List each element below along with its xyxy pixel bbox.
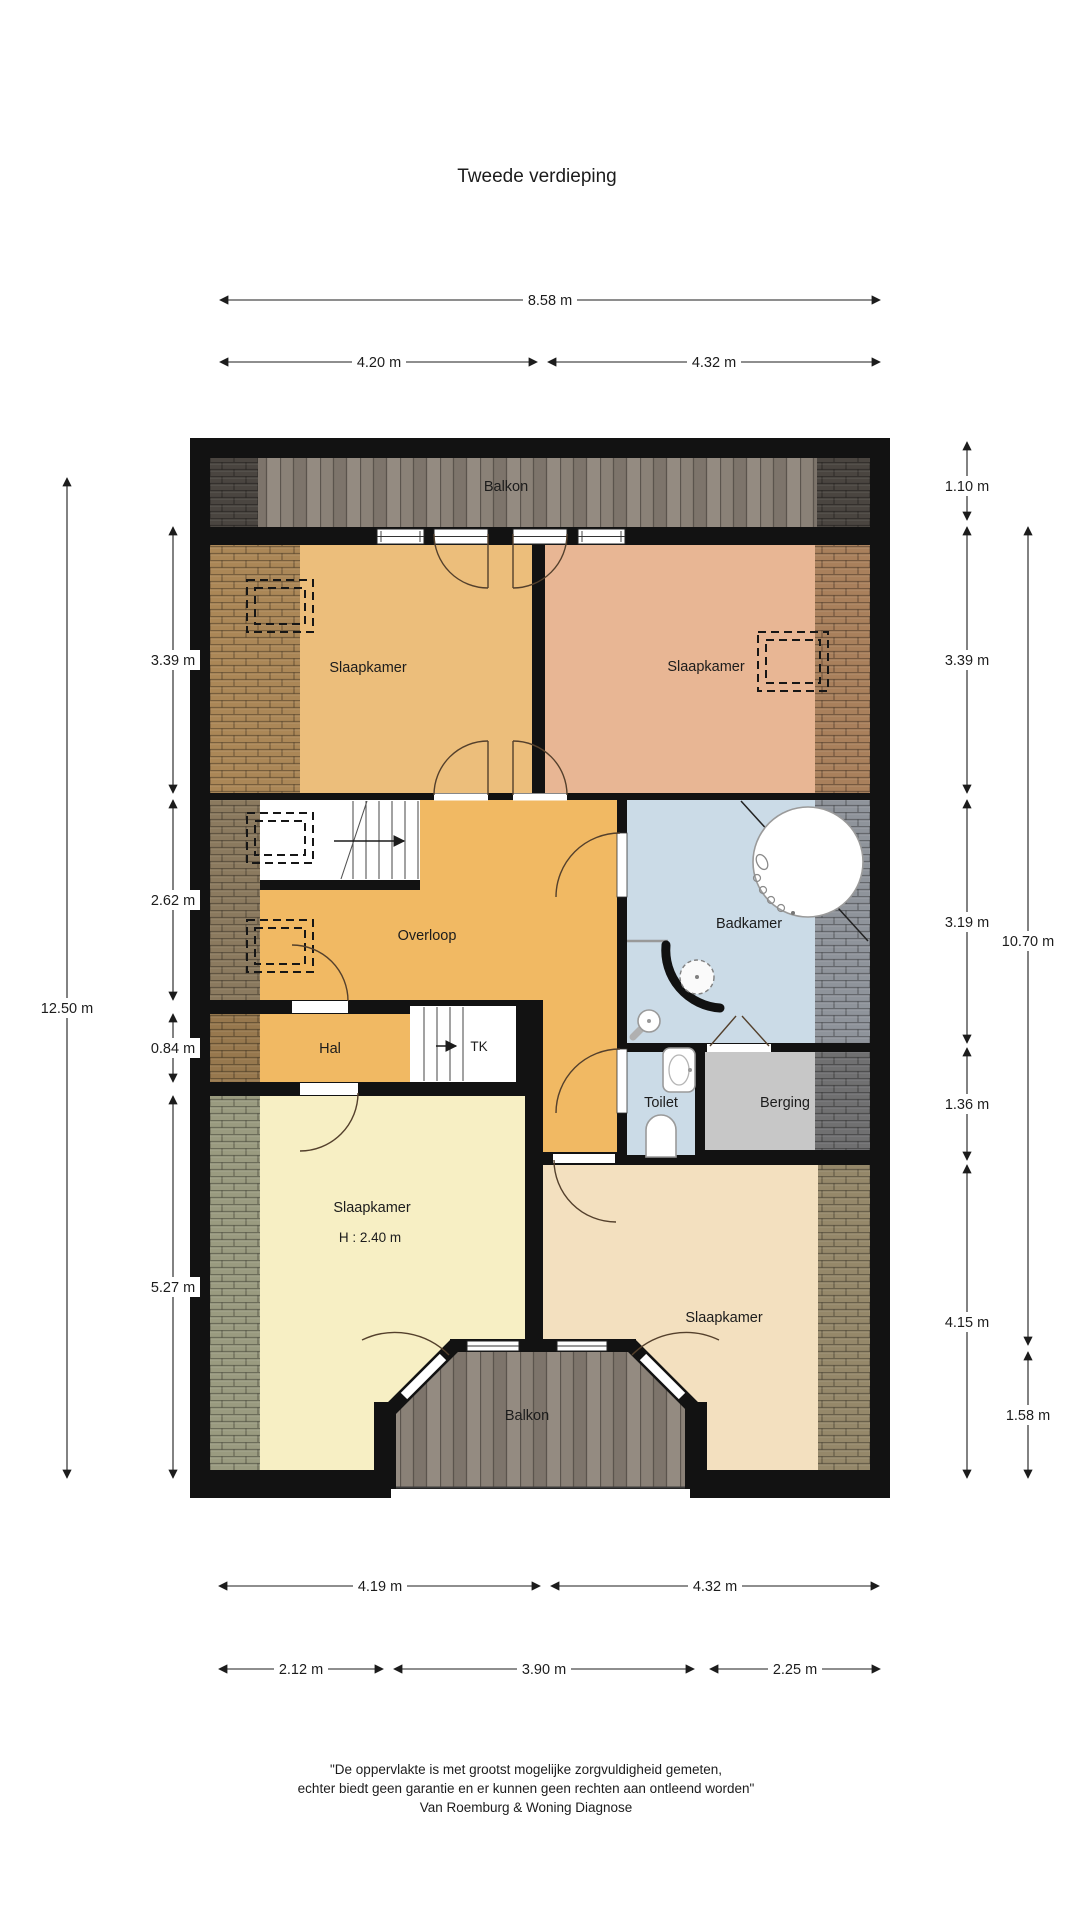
- room-label-slaapkamer-br: Slaapkamer: [685, 1310, 763, 1326]
- dim-right-total: 10.70 m: [1002, 934, 1054, 950]
- overloop-corridor: [543, 1000, 617, 1152]
- room-label-badkamer: Badkamer: [716, 916, 782, 932]
- dim-bottom-row1-left: 4.19 m: [358, 1579, 402, 1595]
- room-label-tk: TK: [470, 1039, 487, 1054]
- toilet-bowl: [646, 1115, 676, 1157]
- dim-left-seg3: 0.84 m: [151, 1041, 195, 1057]
- dim-bottom-row2-mid: 3.90 m: [522, 1662, 566, 1678]
- room-label-toilet: Toilet: [644, 1095, 678, 1111]
- dim-right-seg5: 4.15 m: [945, 1315, 989, 1331]
- door-hal: [292, 1001, 348, 1013]
- door-threshold: [513, 794, 567, 801]
- room-ceiling-height: H : 2.40 m: [339, 1230, 401, 1245]
- sink-toilet: [663, 1048, 695, 1092]
- staircase: [260, 800, 420, 880]
- page-title: Tweede verdieping: [457, 166, 617, 187]
- dim-top-left: 4.20 m: [357, 355, 401, 371]
- room-label-slaapkamer-bl: Slaapkamer: [333, 1200, 411, 1216]
- dim-right-seg3: 3.19 m: [945, 915, 989, 931]
- dim-bottom-row1-right: 4.32 m: [693, 1579, 737, 1595]
- dim-bottom-row2-left: 2.12 m: [279, 1662, 323, 1678]
- dim-right-seg4: 1.36 m: [945, 1097, 989, 1113]
- dim-top-total: 8.58 m: [528, 293, 572, 309]
- door-slaapkamer-bl: [300, 1083, 358, 1095]
- footer-line-3: Van Roemburg & Woning Diagnose: [420, 1800, 633, 1815]
- footer-line-1: "De oppervlakte is met grootst mogelijke…: [330, 1762, 722, 1777]
- room-label-hal: Hal: [319, 1041, 341, 1057]
- room-balkon-top: [210, 458, 870, 527]
- window: [377, 529, 424, 544]
- dim-right-balkon: 1.58 m: [1006, 1408, 1050, 1424]
- dim-left-total: 12.50 m: [41, 1001, 93, 1017]
- door-threshold: [434, 794, 488, 801]
- building: Balkon Slaapkamer Slaapkamer Overloop Ba…: [190, 438, 890, 1524]
- room-overloop: [420, 800, 617, 1000]
- room-label-balkon-bottom: Balkon: [505, 1408, 549, 1424]
- room-label-slaapkamer-tl: Slaapkamer: [329, 660, 407, 676]
- footer-line-2: echter biedt geen garantie en er kunnen …: [298, 1781, 755, 1796]
- room-label-slaapkamer-tr: Slaapkamer: [667, 659, 745, 675]
- dim-right-seg2: 3.39 m: [945, 653, 989, 669]
- door-toilet: [617, 1049, 627, 1113]
- room-label-overloop: Overloop: [398, 928, 457, 944]
- window: [578, 529, 625, 544]
- dim-top-right: 4.32 m: [692, 355, 736, 371]
- door-slaapkamer-br: [553, 1154, 615, 1163]
- room-label-balkon-top: Balkon: [484, 479, 528, 495]
- dim-right-seg1: 1.10 m: [945, 479, 989, 495]
- dim-left-seg2: 2.62 m: [151, 893, 195, 909]
- door-berging: [707, 1044, 771, 1052]
- floor-plan: Tweede verdieping: [0, 0, 1080, 1920]
- room-label-berging: Berging: [760, 1095, 810, 1111]
- dim-bottom-row2-right: 2.25 m: [773, 1662, 817, 1678]
- dim-left-seg4: 5.27 m: [151, 1280, 195, 1296]
- dim-left-seg1: 3.39 m: [151, 653, 195, 669]
- door-badkamer: [617, 833, 627, 897]
